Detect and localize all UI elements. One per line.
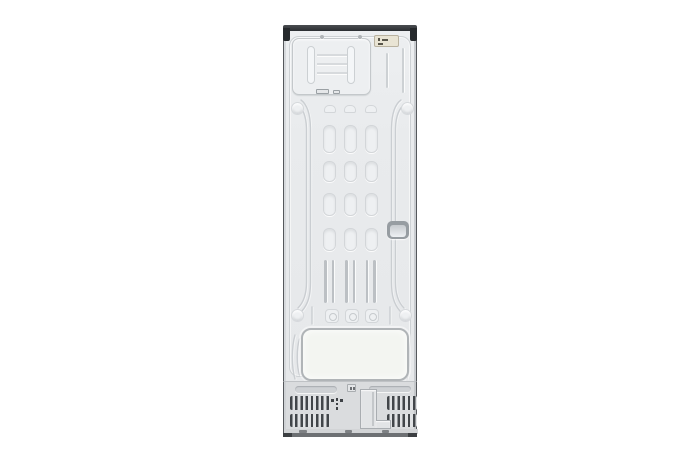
vent-slit [345, 260, 348, 303]
vent-slit [324, 260, 327, 303]
evap-ridge [317, 63, 347, 65]
emboss-tab [344, 105, 356, 113]
emboss-tab-ring [365, 309, 379, 323]
grille-row [290, 396, 330, 410]
spec-label [374, 35, 399, 47]
emboss-tab [324, 105, 336, 113]
evaporator-cover [292, 38, 371, 95]
emboss-slot [365, 228, 378, 251]
compressor-cover [301, 328, 409, 381]
mount-pad [291, 309, 304, 322]
emboss-slot [323, 161, 336, 182]
hinge-bracket-right [410, 28, 417, 41]
drain-cover-plate [360, 389, 377, 429]
vent-slit [373, 260, 376, 303]
refrigerator-back-photo [283, 25, 417, 437]
bottom-rail [283, 433, 417, 437]
emboss-slot [365, 193, 378, 216]
emboss-slot [323, 125, 336, 153]
cable-groove [386, 53, 388, 88]
vent-grille-left [290, 396, 330, 427]
ground-symbol [331, 398, 343, 411]
connector-mark [333, 90, 340, 94]
emboss-slot [344, 161, 357, 182]
handle-recess [387, 221, 409, 239]
evap-vent-slot [307, 46, 315, 84]
emboss-slot [344, 228, 357, 251]
emboss-slot [323, 228, 336, 251]
screw-dot [320, 35, 324, 39]
drain-cover-foot [376, 420, 391, 429]
handle-recess-inner [390, 225, 406, 237]
emboss-slot [365, 125, 378, 153]
hinge-bracket-left [283, 28, 290, 41]
mount-pad [399, 309, 412, 322]
evap-ridge [317, 54, 347, 56]
vent-slit [353, 260, 356, 303]
mount-pad [401, 102, 414, 115]
emboss-slot [323, 193, 336, 216]
base-section [283, 381, 417, 433]
evap-ridge [317, 72, 347, 74]
base-hand-slot-left [295, 386, 337, 393]
evap-vent-slot [347, 46, 355, 84]
grille-row [387, 414, 417, 427]
grille-row [290, 414, 330, 427]
connector-mark [316, 89, 329, 94]
mount-pad [291, 102, 304, 115]
emboss-tab [365, 105, 377, 113]
grille-row [387, 396, 417, 410]
plate-groove [372, 392, 374, 426]
vent-slit [366, 260, 369, 303]
screw-dot [358, 35, 362, 39]
cord-clip [347, 384, 356, 392]
vent-grille-right [387, 396, 417, 427]
emboss-tab-ring [345, 309, 359, 323]
vent-slit [332, 260, 335, 303]
emboss-slot [344, 125, 357, 153]
emboss-tab-ring [325, 309, 339, 323]
back-panel [283, 31, 417, 381]
emboss-slot [365, 161, 378, 182]
emboss-slot [344, 193, 357, 216]
cable-groove [402, 48, 404, 93]
